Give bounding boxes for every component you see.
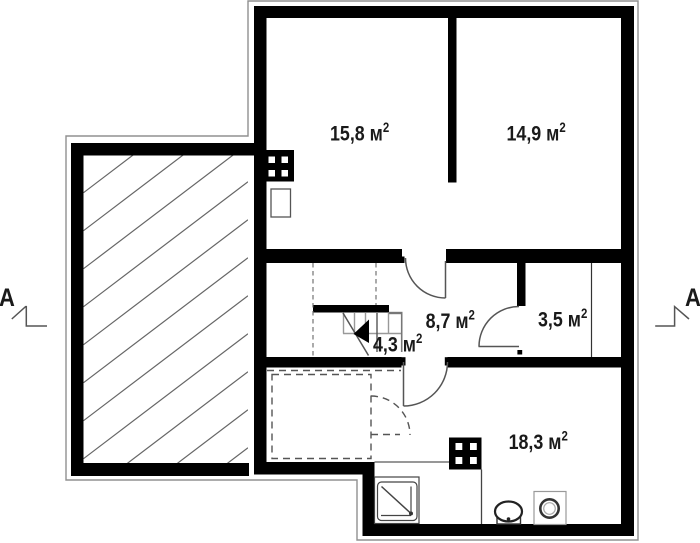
svg-text:15,8 м2: 15,8 м2 [330,120,389,146]
svg-text:18,3 м2: 18,3 м2 [509,429,568,455]
svg-text:4,3 м2: 4,3 м2 [373,331,422,357]
svg-text:8,7 м2: 8,7 м2 [426,308,475,334]
svg-text:A: A [685,284,700,312]
svg-text:3,5 м2: 3,5 м2 [538,306,587,332]
svg-text:14,9 м2: 14,9 м2 [507,120,566,146]
svg-text:A: A [0,284,15,312]
